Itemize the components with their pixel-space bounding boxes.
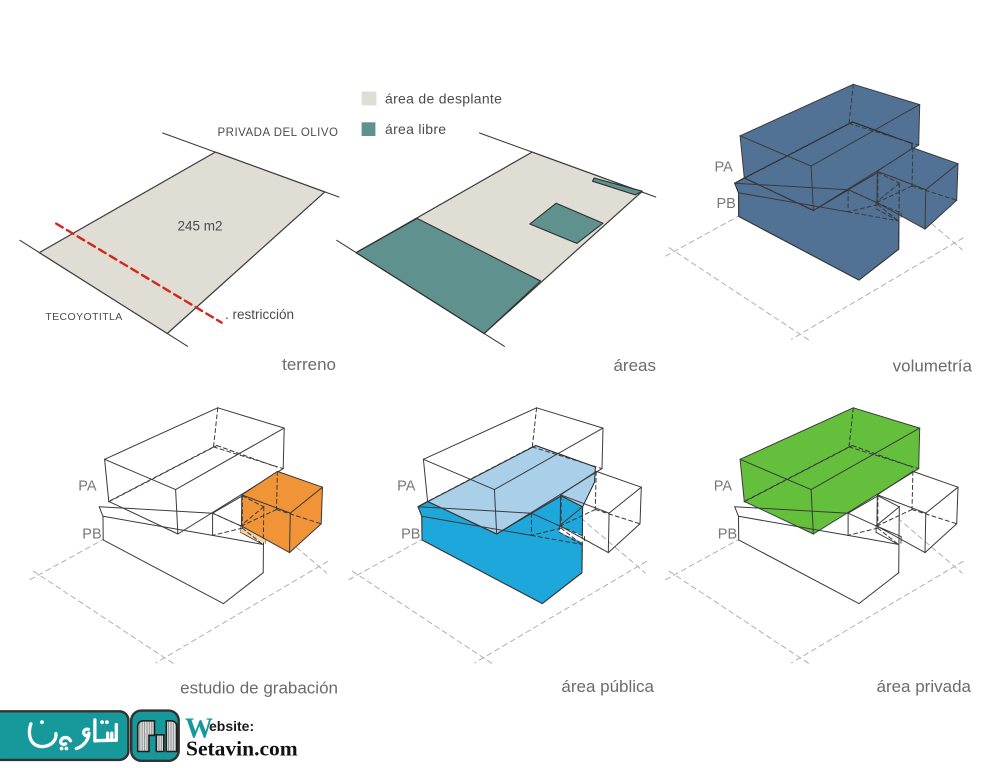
svg-text:PA: PA: [397, 479, 416, 495]
svg-text:área privada: área privada: [876, 677, 971, 696]
svg-text:estudio de grabación: estudio de grabación: [180, 679, 338, 698]
svg-text:PA: PA: [78, 479, 97, 495]
svg-text:área pública: área pública: [561, 677, 654, 696]
svg-text:PB: PB: [401, 527, 420, 543]
svg-text:PA: PA: [715, 160, 734, 176]
svg-text:PB: PB: [82, 527, 101, 543]
svg-text:volumetría: volumetría: [893, 357, 973, 376]
svg-text:área de desplante: área de desplante: [385, 91, 502, 107]
svg-text:PA: PA: [714, 479, 733, 495]
svg-text:245 m2: 245 m2: [177, 219, 222, 234]
svg-text:PB: PB: [717, 196, 736, 212]
svg-text:terreno: terreno: [282, 355, 336, 374]
svg-text:. restricción: . restricción: [225, 307, 294, 322]
svg-text:PRIVADA DEL OLIVO: PRIVADA DEL OLIVO: [218, 127, 339, 139]
svg-text:ebsite:: ebsite:: [209, 718, 254, 734]
svg-text:TECOYOTITLA: TECOYOTITLA: [45, 311, 122, 323]
svg-text:Setavin.com: Setavin.com: [186, 737, 298, 761]
svg-text:áreas: áreas: [613, 356, 656, 375]
svg-text:PB: PB: [718, 527, 737, 543]
svg-text:área libre: área libre: [385, 121, 446, 137]
